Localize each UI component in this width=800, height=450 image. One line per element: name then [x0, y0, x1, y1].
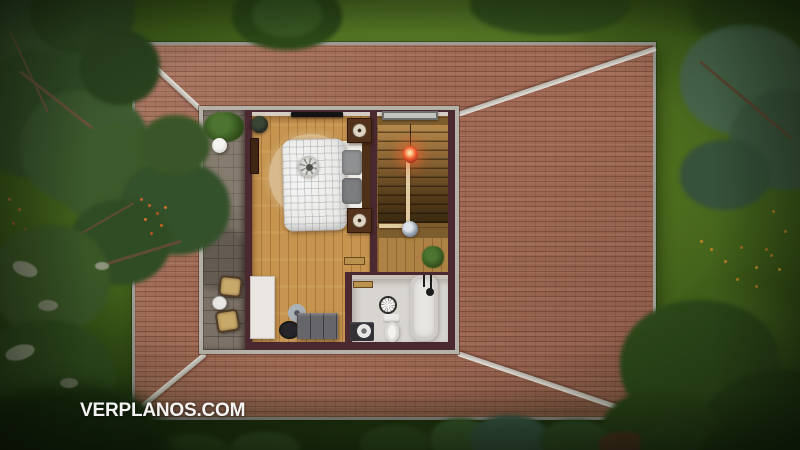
- shower-hose: [423, 275, 425, 287]
- bed-duvet: [282, 138, 347, 232]
- house-interior: [245, 110, 455, 350]
- tv: [291, 112, 343, 117]
- indoor-plant: [422, 246, 444, 268]
- tree-canopy-right: [680, 140, 770, 210]
- watermark: VERPLANOS.COM: [80, 400, 245, 422]
- bathroom-shelf: [353, 281, 373, 288]
- orange-blossoms: [140, 198, 143, 201]
- tree-canopy-top-left: [80, 30, 160, 105]
- stairs: [378, 125, 448, 223]
- fallen-leaves: [700, 240, 703, 243]
- rock: [38, 300, 58, 311]
- shower-hose: [430, 275, 432, 289]
- console: [250, 138, 259, 174]
- toilet: [385, 322, 399, 342]
- planter: [251, 116, 268, 133]
- dresser: [297, 313, 338, 339]
- wicker-chair: [218, 275, 243, 298]
- rock: [95, 262, 109, 270]
- pillow: [342, 150, 362, 175]
- white-vase: [212, 138, 227, 153]
- ceiling-fan-hub: [306, 164, 313, 171]
- pillow: [342, 178, 362, 204]
- orange-blossoms: [8, 198, 11, 201]
- roof-cutaway-floorplan: [199, 106, 459, 354]
- headboard: [362, 139, 370, 213]
- side-table: [212, 296, 227, 310]
- pendant-cord: [410, 124, 411, 148]
- decor-ball: [402, 221, 418, 237]
- wall-shelf: [344, 257, 365, 265]
- wall-clock: [379, 296, 397, 314]
- aerial-house-render: VERPLANOS.COM: [0, 0, 800, 450]
- ceiling-fan: [298, 156, 319, 177]
- wicker-chair: [214, 308, 240, 333]
- bottom-plants: [470, 415, 550, 450]
- washing-machine-drum: [357, 324, 371, 338]
- shower-head: [426, 288, 434, 296]
- rock: [60, 378, 78, 388]
- patio-shrub: [204, 112, 244, 142]
- bottom-plants: [360, 425, 430, 450]
- bush-left: [0, 225, 110, 335]
- stair-railing-vertical: [406, 158, 410, 228]
- stair-window: [382, 111, 438, 120]
- pendant-lamp: [403, 146, 418, 163]
- tree-canopy-left: [140, 115, 210, 175]
- wardrobe: [250, 276, 275, 339]
- table-lamp: [352, 123, 367, 138]
- roof-ridge-top-right: [457, 46, 657, 117]
- bottom-plants: [230, 432, 300, 450]
- table-lamp: [352, 213, 367, 228]
